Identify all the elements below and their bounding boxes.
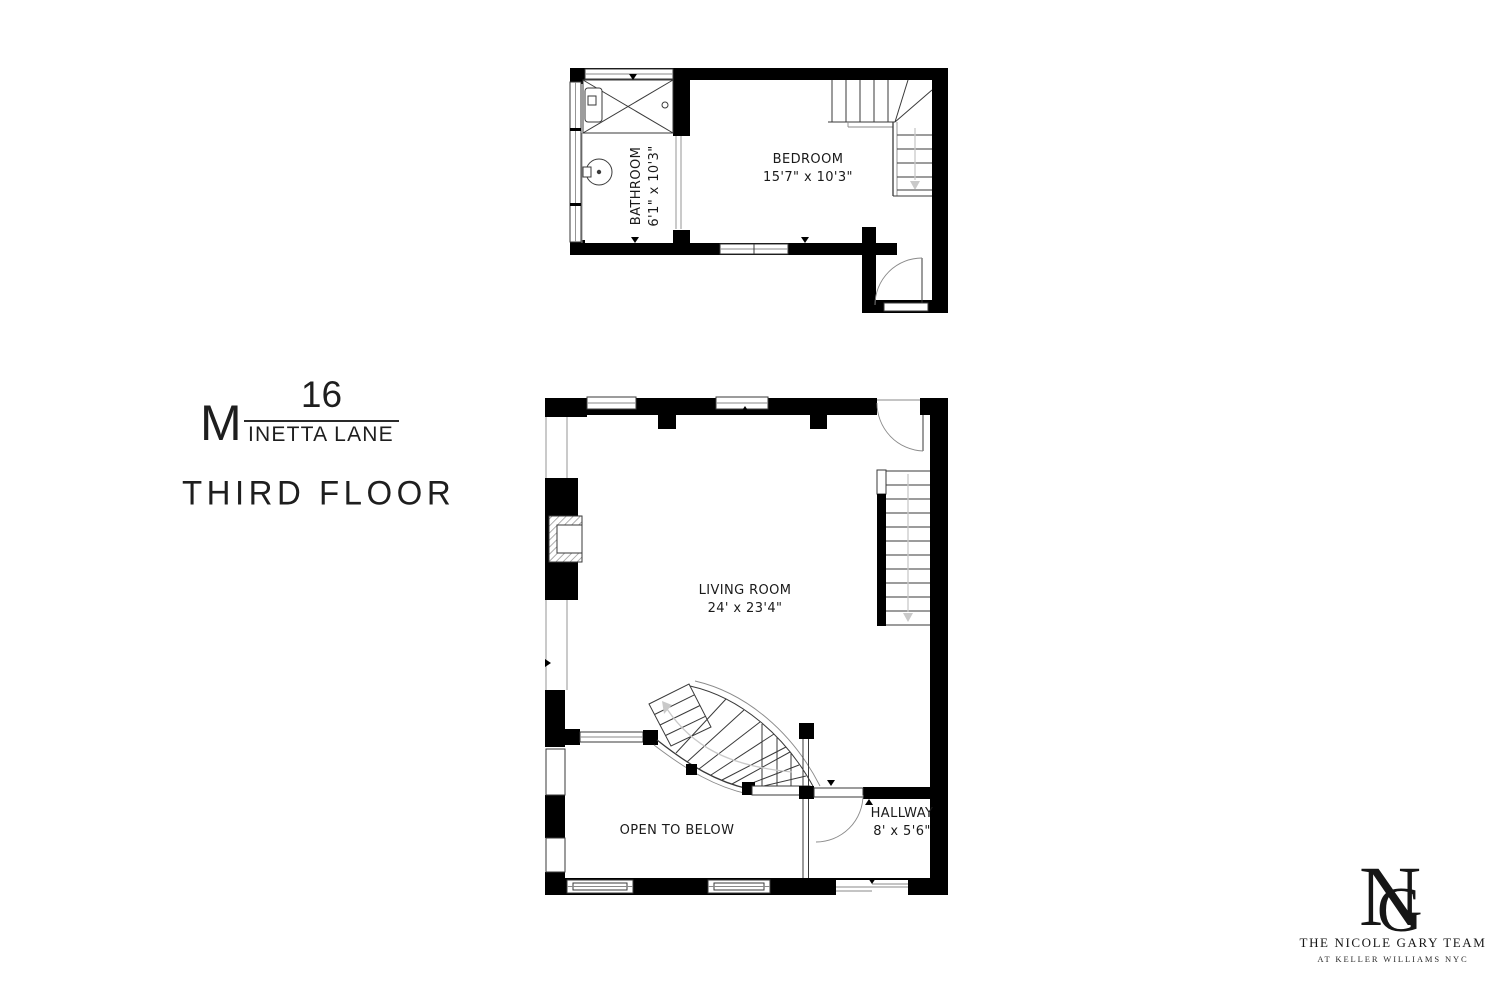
bathroom-left-window <box>570 82 581 242</box>
left-wall-recess <box>546 749 565 795</box>
tick-marker <box>865 799 873 805</box>
title-block: M 16 INETTA LANE THIRD FLOOR <box>180 374 440 452</box>
address-number: 16 <box>245 376 398 413</box>
living-room-label: LIVING ROOM 24' x 23'4" <box>699 583 792 616</box>
stair-newel <box>877 470 886 494</box>
bathroom-label: BATHROOM 6'1" x 10'3" <box>629 145 662 226</box>
bathroom-dims: 6'1" x 10'3" <box>647 145 662 226</box>
shower <box>583 80 673 133</box>
hallway-dims: 8' x 5'6" <box>873 824 931 839</box>
living-room-dims: 24' x 23'4" <box>708 601 783 616</box>
fireplace <box>545 478 582 600</box>
stair-down-arrow-icon <box>910 181 920 190</box>
floorplan-page: BATHROOM 6'1" x 10'3" BEDROOM 15'7" x 10… <box>0 0 1500 1000</box>
bedroom-name: BEDROOM <box>773 152 844 167</box>
curved-staircase <box>649 681 820 795</box>
street-name: INETTA LANE <box>248 423 394 447</box>
main-floor-plan: LIVING ROOM 24' x 23'4" OPEN TO BELOW HA… <box>545 397 948 895</box>
address: M 16 INETTA LANE <box>180 374 440 452</box>
living-room-name: LIVING ROOM <box>699 583 792 598</box>
shower-head-icon <box>662 102 668 108</box>
hallway-partition <box>799 723 814 878</box>
hallway-name: HALLWAY <box>871 806 934 821</box>
sink <box>583 159 612 185</box>
tick-marker <box>545 659 551 667</box>
mezzanine-railing <box>565 729 658 745</box>
bedroom-label: BEDROOM 15'7" x 10'3" <box>763 152 853 185</box>
bathroom-door <box>676 136 681 229</box>
open-to-below-label: OPEN TO BELOW <box>620 823 735 838</box>
tick-marker <box>631 237 639 243</box>
floor-label: THIRD FLOOR <box>182 473 455 513</box>
left-wall-recess <box>546 838 565 872</box>
main-staircase <box>877 470 930 626</box>
tick-marker <box>827 780 835 786</box>
address-divider-line <box>244 420 399 422</box>
bedroom-window <box>720 244 788 254</box>
bedroom-dims: 15'7" x 10'3" <box>763 170 853 185</box>
ng-monogram-icon: N G <box>1293 853 1493 931</box>
bathroom-name: BATHROOM <box>629 147 644 225</box>
street-initial: M <box>200 398 242 448</box>
team-subtitle: AT KELLER WILLIAMS NYC <box>1293 954 1493 964</box>
hallway-label: HALLWAY 8' x 5'6" <box>871 806 934 839</box>
stair-down-arrow-icon <box>903 613 913 622</box>
upper-floor-plan: BATHROOM 6'1" x 10'3" BEDROOM 15'7" x 10… <box>570 68 948 313</box>
tick-marker <box>801 237 809 243</box>
monogram-letter-g: G <box>1377 879 1423 942</box>
brokerage-logo: N G THE NICOLE GARY TEAM AT KELLER WILLI… <box>1293 853 1493 964</box>
